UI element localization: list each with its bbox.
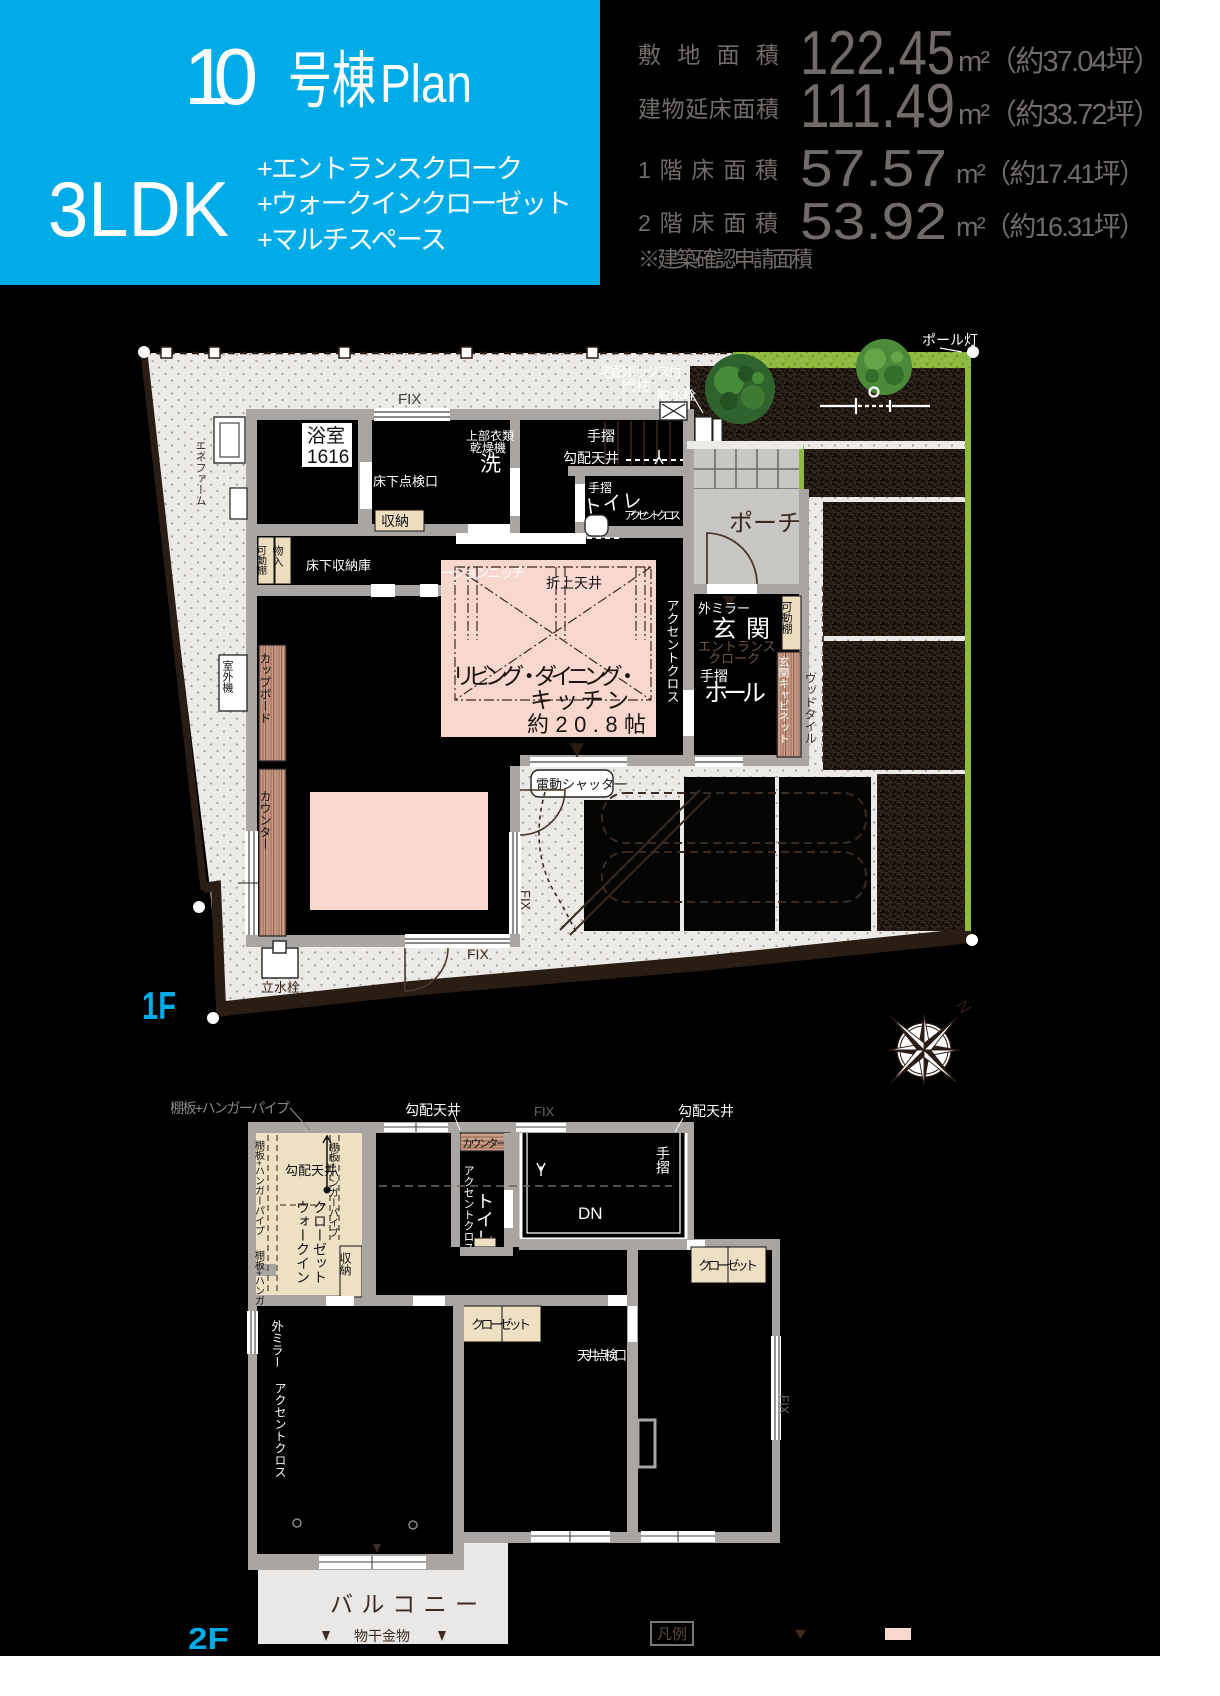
svg-text:アクセントクロス: アクセントクロス bbox=[273, 1382, 287, 1478]
svg-text:1F: 1F bbox=[142, 985, 176, 1028]
svg-text:床下点検口: 床下点検口 bbox=[373, 474, 438, 489]
svg-text:建物延床面積: 建物延床面積 bbox=[638, 96, 779, 122]
svg-text:+ウォークインクローゼット: +ウォークインクローゼット bbox=[257, 189, 572, 219]
svg-text:DN: DN bbox=[578, 1204, 603, 1223]
svg-text:m²（約16.31坪）: m²（約16.31坪） bbox=[956, 212, 1146, 242]
svg-text:FIX: FIX bbox=[534, 1104, 555, 1119]
svg-text:ホール: ホール bbox=[704, 680, 766, 707]
svg-text:棚板+ハンガーパイプ: 棚板+ハンガーパイプ bbox=[253, 1139, 265, 1236]
svg-text:カウンター: カウンター bbox=[462, 1137, 507, 1150]
svg-text:1階床面積: 1階床面積 bbox=[638, 157, 778, 183]
svg-text:勾配天井: 勾配天井 bbox=[285, 1163, 337, 1178]
svg-text:天井点検口: 天井点検口 bbox=[577, 1348, 627, 1363]
svg-text:m²（約33.72坪）: m²（約33.72坪） bbox=[958, 98, 1162, 131]
svg-text:1616: 1616 bbox=[307, 447, 349, 468]
svg-text:勾配天井: 勾配天井 bbox=[678, 1103, 734, 1119]
svg-text:ポーチ: ポーチ bbox=[729, 510, 801, 537]
svg-text:リビング・ダイニング・: リビング・ダイニング・ bbox=[452, 663, 639, 689]
svg-text:m²（約17.41坪）: m²（約17.41坪） bbox=[956, 159, 1146, 189]
svg-text:門柱: 門柱 bbox=[622, 378, 650, 394]
svg-text:玄関キャビネット: 玄関キャビネット bbox=[777, 655, 790, 744]
svg-text:手摺: 手摺 bbox=[587, 428, 615, 444]
svg-text:外ミラー: 外ミラー bbox=[698, 601, 750, 616]
svg-text:FIX: FIX bbox=[518, 890, 533, 911]
svg-text:収納: 収納 bbox=[381, 513, 409, 529]
svg-text:53.92: 53.92 bbox=[800, 193, 947, 251]
svg-text:洗: 洗 bbox=[480, 453, 501, 476]
svg-text:物干金物: 物干金物 bbox=[354, 1628, 410, 1644]
svg-text:2F: 2F bbox=[188, 1621, 229, 1656]
svg-text:凡例: 凡例 bbox=[657, 1626, 687, 1643]
svg-text:FIX: FIX bbox=[398, 391, 421, 408]
svg-text:手摺: 手摺 bbox=[588, 480, 612, 495]
svg-text:折上天井: 折上天井 bbox=[546, 575, 602, 591]
svg-text:※建築確認申請面積: ※建築確認申請面積 bbox=[638, 247, 813, 272]
svg-text:ーションニッチ: ーションニッチ bbox=[440, 565, 525, 581]
svg-text:+エントランスクローク: +エントランスクローク bbox=[257, 154, 523, 184]
svg-text:クローク: クローク bbox=[708, 651, 760, 666]
svg-text:棚板+ハンガーパイプ: 棚板+ハンガーパイプ bbox=[327, 1141, 339, 1238]
svg-text:2階床面積: 2階床面積 bbox=[638, 210, 778, 236]
svg-text:10: 10 bbox=[184, 32, 258, 121]
svg-text:57.57: 57.57 bbox=[800, 140, 947, 198]
svg-text:ポール灯: ポール灯 bbox=[922, 332, 978, 348]
svg-text:勾配天井: 勾配天井 bbox=[563, 450, 619, 466]
svg-text:収納: 収納 bbox=[338, 1252, 352, 1276]
svg-text:m²（約37.04坪）: m²（約37.04坪） bbox=[958, 45, 1162, 78]
svg-text:アクセントクロス: アクセントクロス bbox=[624, 509, 681, 522]
svg-text:棚板+ハンガーパイプ: 棚板+ハンガーパイプ bbox=[170, 1100, 290, 1116]
svg-text:クローゼット: クローゼット bbox=[698, 1258, 758, 1273]
svg-text:勾配天井: 勾配天井 bbox=[405, 1102, 461, 1118]
svg-text:可動棚: 可動棚 bbox=[255, 545, 267, 576]
svg-text:アクセントクロス: アクセントクロス bbox=[665, 599, 680, 703]
svg-text:室外機: 室外機 bbox=[221, 659, 234, 694]
svg-text:FIX: FIX bbox=[467, 946, 489, 962]
svg-text:FIX: FIX bbox=[777, 1395, 791, 1414]
svg-text:浴室: 浴室 bbox=[307, 425, 345, 447]
svg-text:クローゼット: クローゼット bbox=[312, 1200, 328, 1284]
svg-text:カウンター: カウンター bbox=[258, 790, 272, 850]
svg-text:外ミラー: 外ミラー bbox=[270, 1320, 284, 1368]
svg-text:散水栓: 散水栓 bbox=[657, 388, 696, 403]
svg-text:立水栓: 立水栓 bbox=[261, 980, 300, 995]
svg-text:物入: 物入 bbox=[271, 544, 284, 567]
svg-text:床下収納庫: 床下収納庫 bbox=[306, 558, 371, 573]
svg-text:クローゼット: クローゼット bbox=[471, 1317, 531, 1332]
svg-text:エネファーム: エネファーム bbox=[194, 440, 207, 506]
svg-text:可動棚: 可動棚 bbox=[780, 601, 793, 635]
svg-text:手摺: 手摺 bbox=[655, 1146, 671, 1174]
svg-text:ウッドタイル: ウッドタイル bbox=[803, 672, 817, 744]
svg-text:バルコニー: バルコニー bbox=[330, 1591, 478, 1617]
svg-text:+マルチスペース: +マルチスペース bbox=[257, 225, 447, 255]
svg-text:ウォークイン: ウォークイン bbox=[295, 1200, 311, 1284]
svg-text:111.49: 111.49 bbox=[800, 72, 955, 141]
svg-text:カップボード: カップボード bbox=[258, 652, 272, 724]
svg-text:アクセントクロス: アクセントクロス bbox=[462, 1165, 475, 1253]
svg-text:Plan: Plan bbox=[380, 54, 472, 114]
svg-text:3LDK: 3LDK bbox=[48, 165, 229, 253]
svg-text:号棟: 号棟 bbox=[288, 47, 376, 116]
